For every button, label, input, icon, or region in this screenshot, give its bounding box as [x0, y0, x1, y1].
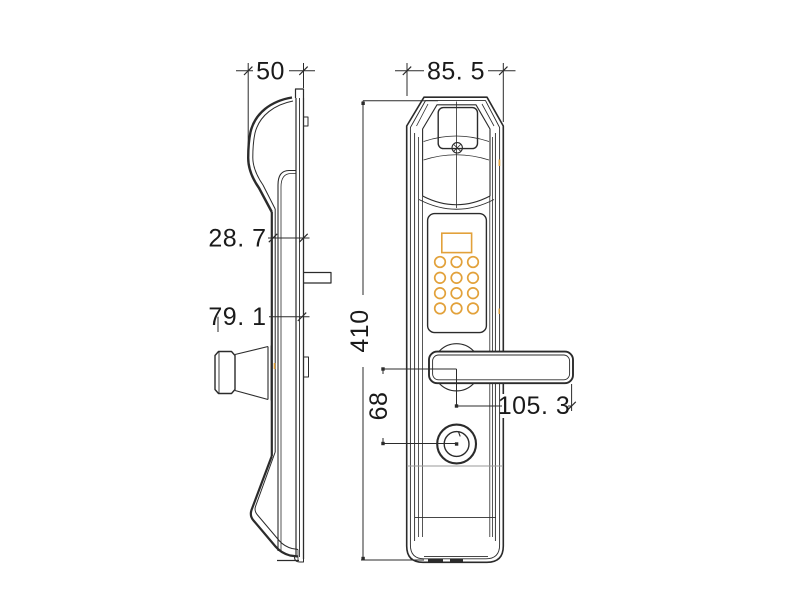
- keypad-button: [435, 303, 446, 314]
- keypad-button: [451, 257, 462, 268]
- dimension-mount-depth: 28. 7: [208, 225, 309, 253]
- end-dot: [381, 442, 384, 445]
- rotated-label-group: 68: [365, 374, 393, 438]
- keypad-button: [468, 273, 479, 284]
- lock-technical-drawing: 50 85. 5 28. 7 79. 1: [0, 0, 790, 598]
- body-side-lines-1: [415, 133, 496, 541]
- dimension-label-side-width: 50: [256, 58, 285, 86]
- keypad-button: [435, 273, 446, 284]
- dimension-label-mount-depth: 28. 7: [208, 225, 266, 253]
- dimension-label-handle-length: 105. 3: [498, 392, 571, 420]
- keypad-button: [435, 257, 446, 268]
- body-outline-inner: [410, 101, 499, 559]
- end-dot: [455, 404, 458, 407]
- dimension-label-body-height: 410: [346, 309, 374, 352]
- escutcheon-bottom-bend-outer: [251, 456, 298, 557]
- keypad-button: [451, 303, 462, 314]
- end-dot: [381, 367, 384, 370]
- rotated-label-group: 410: [346, 295, 374, 367]
- keyhole-notch: [459, 432, 461, 436]
- keypad-button: [468, 257, 479, 268]
- spindle-tab: [304, 273, 332, 284]
- dimension-front-width: 85. 5: [395, 58, 516, 123]
- keypad-button: [435, 288, 446, 299]
- dimension-label-front-width: 85. 5: [427, 58, 485, 86]
- keypad-buttons: [435, 257, 479, 314]
- drawing-canvas: 50 85. 5 28. 7 79. 1: [0, 0, 790, 598]
- screw-cross: [454, 145, 461, 152]
- plate-nub: [304, 117, 309, 126]
- body-side-lines-2: [419, 137, 493, 537]
- keyhole-center-dot: [455, 442, 458, 445]
- dimension-label-thumbturn-depth: 79. 1: [208, 303, 266, 331]
- escutcheon-top-curve-inner: [253, 101, 293, 209]
- escutcheon-bottom-bend-inner: [255, 452, 298, 550]
- dimension-thumbturn-depth: 79. 1: [208, 303, 309, 332]
- plate-top-cap: [296, 89, 304, 98]
- lever-handle: [429, 352, 573, 384]
- keypad-button: [468, 288, 479, 299]
- front-view: [407, 97, 573, 562]
- thumbturn-cap: [215, 352, 235, 394]
- thumbturn-taper: [235, 347, 268, 400]
- body-outline-outer: [407, 97, 504, 562]
- escutcheon-top-curve-outer: [248, 98, 292, 213]
- keypad-button: [451, 273, 462, 284]
- keypad-display: [442, 233, 472, 252]
- cylinder-tab: [304, 357, 309, 377]
- dimension-body-height: 410: [346, 101, 438, 561]
- end-dot: [361, 102, 364, 105]
- end-dot: [361, 557, 364, 560]
- keypad-button: [468, 303, 479, 314]
- inner-plate-line: [281, 174, 296, 552]
- keypad-button: [451, 288, 462, 299]
- dimension-label-handle-to-keyhole: 68: [365, 392, 393, 421]
